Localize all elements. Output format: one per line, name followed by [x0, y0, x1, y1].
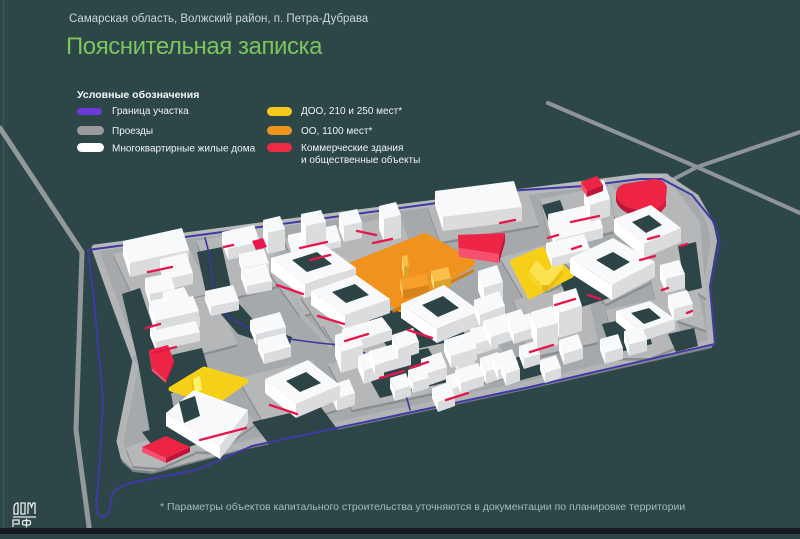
svg-text:Пояснительная записка: Пояснительная записка — [66, 33, 323, 60]
svg-text:Коммерческие здания: Коммерческие здания — [301, 143, 403, 154]
svg-text:Условные обозначения: Условные обозначения — [77, 89, 199, 101]
svg-text:Многоквартирные жилые дома: Многоквартирные жилые дома — [112, 144, 256, 155]
svg-text:Самарская область, Волжский ра: Самарская область, Волжский район, п. Пе… — [69, 13, 369, 25]
svg-text:* Параметры объектов капитальн: * Параметры объектов капитального строит… — [160, 501, 685, 513]
svg-text:Граница участка: Граница участка — [112, 106, 189, 117]
svg-text:ДОО, 210 и 250 мест*: ДОО, 210 и 250 мест* — [301, 106, 402, 117]
svg-text:ОО, 1100 мест*: ОО, 1100 мест* — [301, 126, 372, 137]
svg-text:и общественные объекты: и общественные объекты — [301, 154, 420, 166]
svg-text:Проезды: Проезды — [112, 126, 153, 137]
